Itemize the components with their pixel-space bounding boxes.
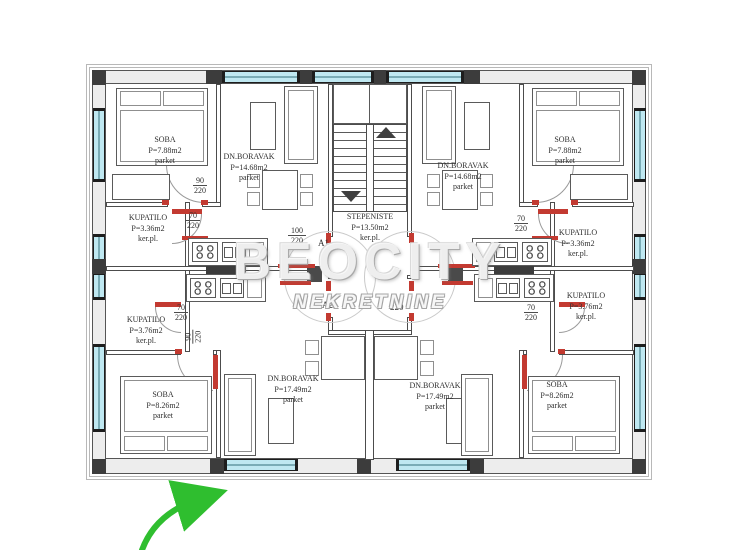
wardrobe: [112, 174, 170, 200]
room-floor: parket: [262, 395, 324, 406]
window: [634, 108, 646, 182]
dim-width: 90: [193, 176, 207, 186]
room-area: P=3.36m2: [120, 224, 176, 235]
window: [634, 234, 646, 262]
dim-width: 90: [183, 330, 193, 344]
door-leaf: [213, 355, 218, 389]
door-jamb: [326, 313, 331, 321]
room-name: DN.BORAVAK: [432, 161, 494, 172]
window: [93, 108, 105, 182]
coffee-table: [250, 102, 276, 150]
room-name: KUPATILO: [120, 213, 176, 224]
room-name: STEPENISTE: [333, 212, 407, 223]
pillow: [167, 436, 208, 451]
dim-width: 70: [524, 303, 538, 313]
chair: [300, 192, 313, 206]
dining-table: [321, 336, 365, 380]
door-dimension: 90 220: [193, 176, 207, 195]
stair-direction-arrow: [376, 127, 396, 138]
door-dimension: 70 220: [514, 214, 528, 233]
pillow: [120, 91, 161, 106]
room-area: P=8.26m2: [138, 401, 188, 412]
dim-height: 220: [194, 330, 203, 344]
room-floor: parket: [432, 182, 494, 193]
room-floor: ker.pl.: [550, 249, 606, 260]
room-label-soba-bot-left: SOBA P=8.26m2 parket: [138, 390, 188, 422]
room-name: KUPATILO: [118, 315, 174, 326]
chair: [420, 340, 434, 355]
column: [632, 70, 646, 85]
column: [632, 459, 646, 474]
door-dimension: 70 220: [186, 211, 200, 230]
chair: [427, 192, 440, 206]
column: [374, 70, 386, 84]
room-name: SOBA: [140, 135, 190, 146]
room-name: KUPATILO: [558, 291, 614, 302]
pillow: [532, 436, 573, 451]
door-dimension: 70 220: [524, 303, 538, 322]
column: [92, 259, 106, 274]
room-name: KUPATILO: [550, 228, 606, 239]
room-label-soba-top-left: SOBA P=7.88m2 parket: [140, 135, 190, 167]
room-floor: parket: [532, 401, 582, 412]
door-dimension-vertical: 90 220: [183, 330, 202, 344]
column: [464, 70, 480, 84]
room-area: P=7.88m2: [140, 146, 190, 157]
chair: [420, 361, 434, 376]
pillow: [163, 91, 204, 106]
room-label-soba-bot-right: SOBA P=8.26m2 parket: [532, 380, 582, 412]
wardrobe: [570, 174, 628, 200]
dim-width: 70: [174, 303, 188, 313]
room-label-dnboravak-top-right: DN.BORAVAK P=14.68m2 parket: [432, 161, 494, 193]
dim-height: 220: [524, 313, 538, 322]
window: [93, 344, 105, 432]
dim-width: 70: [514, 214, 528, 224]
door-dimension: 70 220: [174, 303, 188, 322]
green-arrow-path: [142, 498, 202, 550]
dim-height: 220: [174, 313, 188, 322]
column: [632, 259, 646, 274]
wall-interior: [106, 202, 168, 207]
room-label-kupatilo-top-left: KUPATILO P=3.36m2 ker.pl.: [120, 213, 176, 245]
room-label-dnboravak-bot-right: DN.BORAVAK P=17.49m2 parket: [404, 381, 466, 413]
room-floor: parket: [140, 156, 190, 167]
window: [93, 234, 105, 262]
room-floor: ker.pl.: [558, 312, 614, 323]
wall-interior: [559, 350, 634, 355]
pillow: [536, 91, 577, 106]
wall-interior: [216, 84, 221, 204]
room-name: SOBA: [540, 135, 590, 146]
stair-direction-arrow: [341, 191, 361, 202]
wall-partition-center: [365, 330, 374, 460]
door-jamb: [532, 200, 539, 205]
room-name: DN.BORAVAK: [218, 152, 280, 163]
wall-stairhall-right: [407, 84, 412, 237]
window: [312, 71, 374, 83]
room-name: SOBA: [138, 390, 188, 401]
column: [92, 459, 106, 474]
room-name: DN.BORAVAK: [262, 374, 324, 385]
pillow: [579, 91, 620, 106]
room-area: P=3.36m2: [550, 239, 606, 250]
sofa-cushion: [228, 378, 252, 452]
room-label-kupatilo-bot-right: KUPATILO P=3.76m2 ker.pl.: [558, 291, 614, 323]
window-balcony-door: [396, 459, 470, 471]
door-jamb: [175, 349, 182, 354]
door-jamb: [409, 313, 414, 321]
coffee-table: [464, 102, 490, 150]
room-label-dnboravak-bot-left: DN.BORAVAK P=17.49m2 parket: [262, 374, 324, 406]
window-balcony-door: [224, 459, 298, 471]
dim-height: 220: [193, 186, 207, 195]
window: [222, 71, 300, 83]
room-area: P=17.49m2: [404, 392, 466, 403]
chair: [480, 192, 493, 206]
room-floor: parket: [540, 156, 590, 167]
room-area: P=3.76m2: [118, 326, 174, 337]
window: [634, 272, 646, 300]
wall-interior: [519, 84, 524, 204]
dim-width: 70: [186, 211, 200, 221]
room-label-kupatilo-top-right: KUPATILO P=3.36m2 ker.pl.: [550, 228, 606, 260]
room-floor: ker.pl.: [120, 234, 176, 245]
room-name: DN.BORAVAK: [404, 381, 466, 392]
room-label-kupatilo-bot-left: KUPATILO P=3.76m2 ker.pl.: [118, 315, 174, 347]
sofa-cushion: [426, 90, 452, 160]
door-jamb: [558, 349, 565, 354]
stair-landing-divider: [369, 84, 370, 124]
room-area: P=3.76m2: [558, 302, 614, 313]
room-floor: parket: [404, 402, 466, 413]
pillow: [575, 436, 616, 451]
watermark-subtitle: NEKRETNINE: [270, 292, 470, 314]
room-area: P=8.26m2: [532, 391, 582, 402]
column: [92, 70, 106, 85]
room-area: P=14.68m2: [432, 172, 494, 183]
column: [357, 459, 371, 474]
window: [634, 344, 646, 432]
window: [93, 272, 105, 300]
room-floor: ker.pl.: [118, 336, 174, 347]
room-floor: parket: [138, 411, 188, 422]
column: [210, 459, 224, 474]
window: [386, 71, 464, 83]
watermark-brand: BEOCITY: [190, 232, 550, 292]
chair: [300, 174, 313, 188]
room-floor: parket: [218, 173, 280, 184]
room-label-soba-top-right: SOBA P=7.88m2 parket: [540, 135, 590, 167]
room-label-dnboravak-top-left: DN.BORAVAK P=14.68m2 parket: [218, 152, 280, 184]
chair: [305, 340, 319, 355]
stair-stringer: [366, 124, 374, 212]
room-name: SOBA: [532, 380, 582, 391]
column: [206, 70, 222, 84]
room-area: P=7.88m2: [540, 146, 590, 157]
column: [470, 459, 484, 474]
green-arrow-icon: [126, 478, 238, 550]
chair: [247, 192, 260, 206]
sofa-cushion: [465, 378, 489, 452]
door-jamb: [201, 200, 208, 205]
door-jamb: [571, 200, 578, 205]
dim-height: 220: [186, 221, 200, 230]
floor-plan-image: SOBA P=7.88m2 parket DN.BORAVAK P=14.68m…: [0, 0, 740, 550]
dining-table: [374, 336, 418, 380]
sofa-cushion: [288, 90, 314, 160]
pillow: [124, 436, 165, 451]
room-area: P=17.49m2: [262, 385, 324, 396]
wall-interior: [572, 202, 634, 207]
column: [300, 70, 312, 84]
wall-interior: [106, 350, 181, 355]
room-area: P=14.68m2: [218, 163, 280, 174]
door-jamb: [162, 200, 169, 205]
stair-landing: [333, 84, 407, 124]
